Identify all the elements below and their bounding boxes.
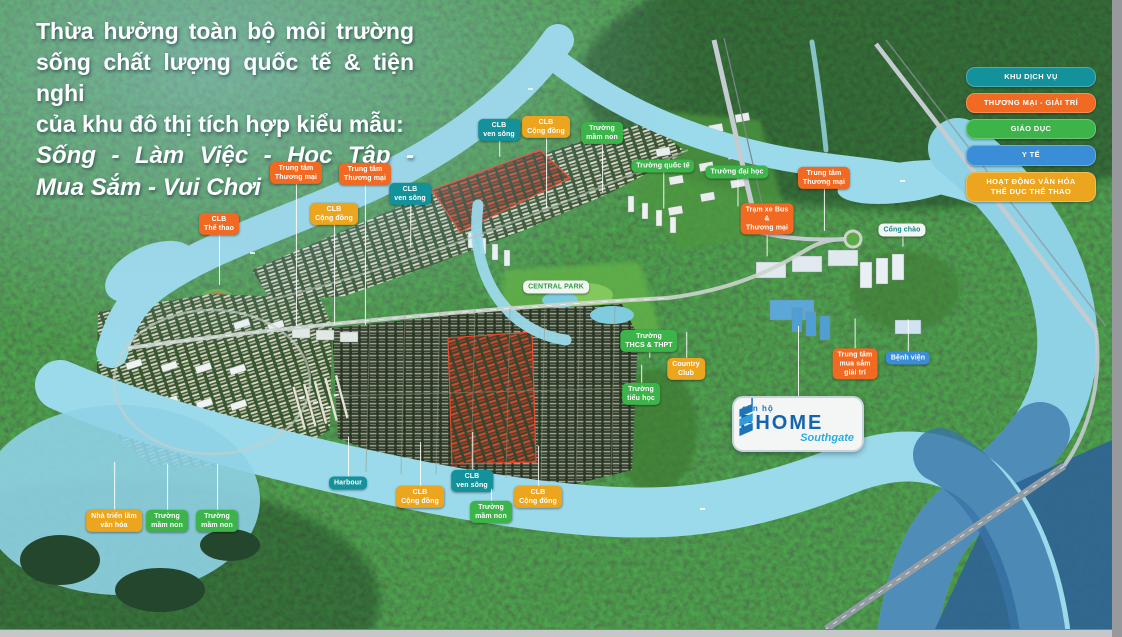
logo-subtitle: Southgate [800, 432, 854, 444]
legend-item-4: Y TẾ [966, 145, 1096, 165]
masterplan-map: Thừa hưởng toàn bộ môi trường sống chất … [0, 0, 1112, 629]
tagline-line-1: Sống - Làm Việc - Học Tập - [36, 140, 414, 172]
slide: Thừa hưởng toàn bộ môi trường sống chất … [0, 0, 1122, 637]
legend-item-3: GIÁO DỤC [966, 119, 1096, 139]
headline-line-1: Thừa hưởng toàn bộ môi trường [36, 16, 414, 47]
roundabout [845, 231, 861, 247]
legend-item-2: THƯƠNG MẠI - GIẢI TRÍ [966, 93, 1096, 113]
project-logo: căn hộ EHOME Southgate [732, 396, 864, 452]
slide-bottom-margin [0, 629, 1112, 637]
hospital-building [895, 320, 921, 334]
headline-line-3: của khu đô thị tích hợp kiểu mẫu: [36, 109, 414, 140]
slide-right-margin [1112, 0, 1122, 637]
logo-card: căn hộ EHOME Southgate [732, 396, 864, 452]
tagline-line-2: Mua Sắm - Vui Chơi [36, 172, 414, 204]
legend-item-5: HOẠT ĐỘNG VĂN HÓA THỂ DỤC THỂ THAO [966, 172, 1096, 202]
ehome-building-icon [734, 398, 760, 438]
leader-line [798, 326, 799, 402]
legend-item-1: KHU DỊCH VỤ [966, 67, 1096, 87]
headline: Thừa hưởng toàn bộ môi trường sống chất … [36, 16, 414, 204]
legend: KHU DỊCH VỤTHƯƠNG MẠI - GIẢI TRÍGIÁO DỤC… [966, 67, 1096, 202]
headline-line-2: sống chất lượng quốc tế & tiện nghi [36, 47, 414, 109]
